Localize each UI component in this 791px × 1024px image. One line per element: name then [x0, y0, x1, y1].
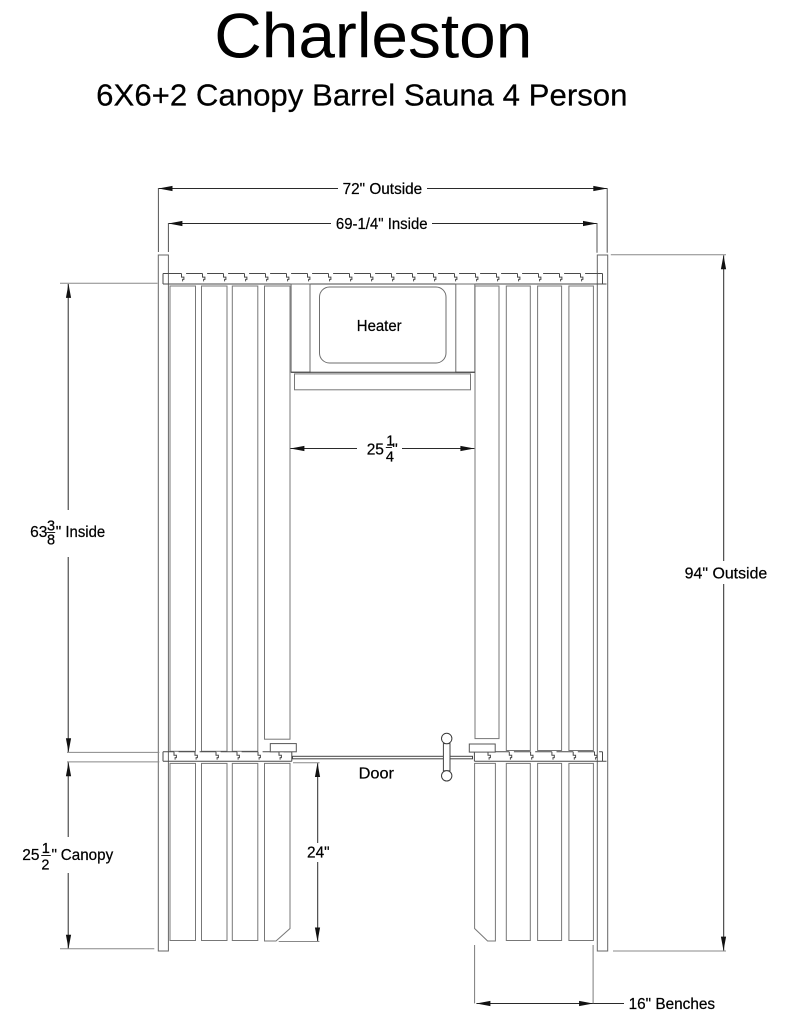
svg-text:2: 2 — [41, 857, 49, 873]
svg-text:": " — [56, 524, 62, 541]
svg-text:6X6+2 Canopy Barrel Sauna 4 Pe: 6X6+2 Canopy Barrel Sauna 4 Person — [96, 78, 627, 113]
svg-text:69-1/4" Inside: 69-1/4" Inside — [336, 216, 428, 233]
svg-text:63: 63 — [30, 524, 47, 541]
svg-text:Charleston: Charleston — [214, 1, 532, 71]
svg-text:25: 25 — [367, 442, 384, 459]
svg-text:": " — [52, 847, 58, 864]
svg-text:": " — [392, 442, 398, 459]
svg-text:25: 25 — [22, 847, 39, 864]
svg-text:72" Outside: 72" Outside — [343, 181, 423, 198]
svg-text:Heater: Heater — [357, 318, 402, 335]
svg-text:24": 24" — [307, 845, 330, 862]
svg-text:Inside: Inside — [65, 524, 105, 541]
svg-text:Door: Door — [359, 765, 394, 782]
svg-text:Canopy: Canopy — [61, 847, 114, 864]
svg-text:94" Outside: 94" Outside — [685, 565, 768, 582]
svg-text:16" Benches: 16" Benches — [629, 996, 716, 1013]
svg-text:8: 8 — [47, 533, 55, 549]
svg-text:1: 1 — [42, 841, 50, 857]
